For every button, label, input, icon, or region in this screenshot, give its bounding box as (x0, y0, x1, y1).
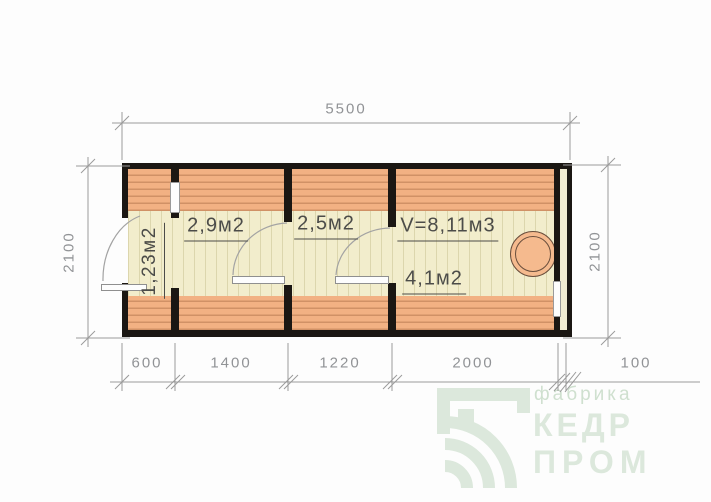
dim-bottom-segment-label: 600 (131, 355, 162, 372)
watermark: фабрика КЕДР ПРОМ (437, 384, 707, 496)
door-leaf-room3 (335, 276, 389, 284)
partition-2-bottom (284, 285, 292, 330)
dim-bottom-segment-label: 2000 (452, 355, 493, 372)
wall-left-lower (122, 283, 128, 337)
door-leaf-room2 (232, 276, 285, 284)
watermark-tagline: фабрика (534, 384, 633, 406)
stove-inner-ring (515, 236, 551, 272)
room-4-area-label: 4,1м2 (402, 268, 466, 295)
wall-bottom (122, 330, 572, 337)
stove-icon (510, 231, 556, 277)
partition-1-mid (171, 213, 179, 218)
plank-band-bottom (128, 296, 554, 330)
partition-1-bottom (171, 288, 179, 330)
side-strip-right (560, 169, 567, 330)
wall-left-upper (122, 163, 128, 218)
dim-depth-left-label: 2100 (61, 231, 78, 272)
room-2-area-label: 2,9м2 (184, 215, 248, 242)
partition-1-top (171, 169, 179, 182)
interior-wall-window (553, 281, 561, 317)
room-4-volume-label: V=8,11м3 (397, 215, 498, 242)
wall-right (567, 163, 572, 337)
partition-1-window (170, 182, 180, 213)
wall-top (122, 163, 572, 169)
floor-plan: фабрика КЕДР ПРОМ (0, 0, 711, 502)
watermark-brand-line2: ПРОМ (533, 446, 652, 478)
plank-band-top (128, 169, 554, 211)
partition-3-bottom (388, 283, 396, 330)
dim-bottom-segment-label: 1400 (210, 355, 251, 372)
dim-depth-right-label: 2100 (587, 230, 604, 271)
watermark-brand-line1: КЕДР (533, 409, 634, 441)
dim-total-length-label: 5500 (325, 101, 366, 118)
dim-bottom-segment-label: 1220 (319, 355, 360, 372)
partition-2-top (284, 169, 292, 222)
room-1-area-label: 1,23м2 (139, 223, 165, 299)
dim-bottom-segment-label: 100 (620, 355, 651, 372)
room-3-area-label: 2,5м2 (294, 213, 358, 240)
partition-3-top (388, 169, 396, 227)
